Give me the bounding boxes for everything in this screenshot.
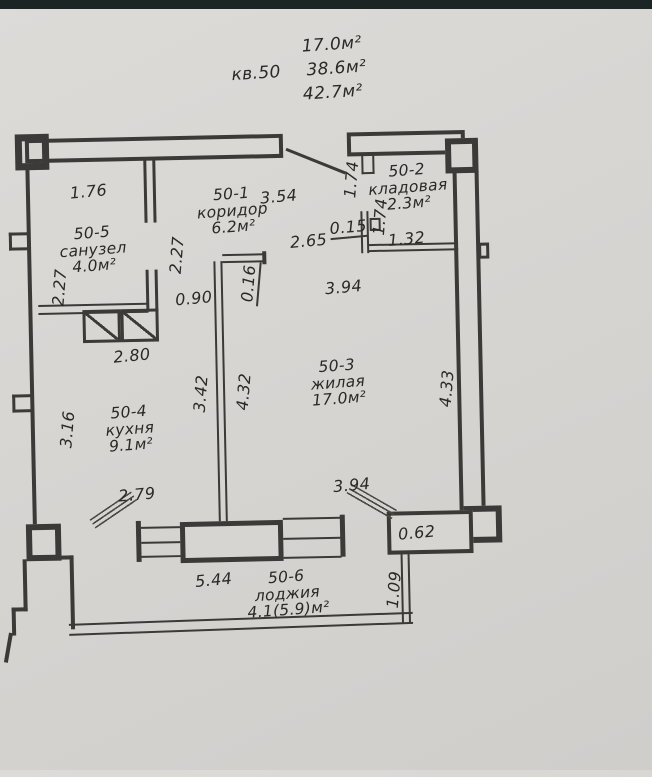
scanned-floor-plan-sheet: { "header": { "apartment_no": "кв.50", "… bbox=[0, 0, 652, 770]
dim-zhilaya-top-width: 3.94 bbox=[324, 277, 363, 298]
room-label-kuhnya: 50-4 кухня 9.1м² bbox=[90, 401, 169, 456]
wall-right bbox=[453, 171, 486, 511]
dim-sanuzel-left-height: 2.27 bbox=[49, 265, 71, 310]
outer-left-diagonal bbox=[4, 633, 13, 663]
dim-kladovaya-left-height: 1.74 bbox=[341, 157, 363, 202]
dim-lodzhiya-width: 5.44 bbox=[194, 570, 233, 591]
plan-header: 17.0м² кв.50 38.6м² 42.7м² bbox=[229, 30, 383, 112]
window-cap-right bbox=[340, 515, 346, 557]
wall-right-notch bbox=[478, 243, 489, 259]
sanuzel-right-wall-upper bbox=[143, 159, 156, 223]
vent-shaft-right bbox=[120, 308, 159, 342]
window-sill-kuhnya bbox=[141, 526, 182, 558]
partition-kuhnya-zhilaya bbox=[213, 261, 227, 523]
dim-zhilaya-bottom-width: 3.94 bbox=[332, 475, 371, 496]
room-label-lodzhiya: 50-6 лоджия 4.1(5.9)м² bbox=[236, 565, 339, 622]
room-label-zhilaya: 50-3 жилая 17.0м² bbox=[294, 355, 381, 411]
dim-pier-width: 0.62 bbox=[397, 522, 436, 543]
dim-koridor-left-height: 2.27 bbox=[166, 232, 188, 277]
dim-koridor-width: 3.54 bbox=[259, 186, 298, 207]
partition-stub-cap bbox=[262, 251, 266, 264]
dim-kladovaya-wall-thickness: 0.15 bbox=[329, 217, 368, 240]
vent-shaft-left bbox=[82, 309, 121, 343]
dim-kladovaya-width: 1.32 bbox=[387, 229, 426, 250]
floor-plan: 17.0м² кв.50 38.6м² 42.7м² 50-1 bbox=[0, 0, 652, 777]
column-bottom-left bbox=[26, 524, 62, 562]
dim-partition-kuhnya-side: 3.42 bbox=[190, 371, 212, 416]
dim-kuhnya-door: 0.90 bbox=[174, 288, 213, 309]
dim-lodzhiya-depth: 1.09 bbox=[383, 567, 405, 612]
dim-sanuzel-width: 1.76 bbox=[69, 181, 108, 202]
dim-kuhnya-top-width: 2.80 bbox=[113, 345, 152, 366]
dim-kuhnya-bottom-width: 2.79 bbox=[118, 484, 157, 505]
dim-partition-zhilaya-side: 4.32 bbox=[233, 369, 255, 414]
entrance-door-line bbox=[285, 148, 346, 175]
lodzhiya-left-wall bbox=[70, 555, 76, 629]
wall-left-notch-upper bbox=[9, 232, 29, 250]
header-area-total: 42.7м² bbox=[302, 77, 383, 106]
apartment-number: кв.50 bbox=[231, 62, 282, 85]
dim-kuhnya-left-height: 3.16 bbox=[57, 407, 79, 452]
balcony-door-window-block bbox=[180, 520, 284, 563]
outer-left-lower-wall2 bbox=[12, 608, 17, 636]
wall-left-outer bbox=[25, 166, 37, 530]
dim-koridor-opening: 2.65 bbox=[289, 231, 328, 252]
wall-left-notch-lower bbox=[12, 394, 32, 412]
outer-left-lower-wall bbox=[23, 559, 28, 611]
window-sill-zhilaya bbox=[283, 517, 342, 559]
dim-zhilaya-right-height: 4.33 bbox=[436, 366, 458, 411]
dim-partition-thickness: 0.16 bbox=[238, 261, 262, 307]
